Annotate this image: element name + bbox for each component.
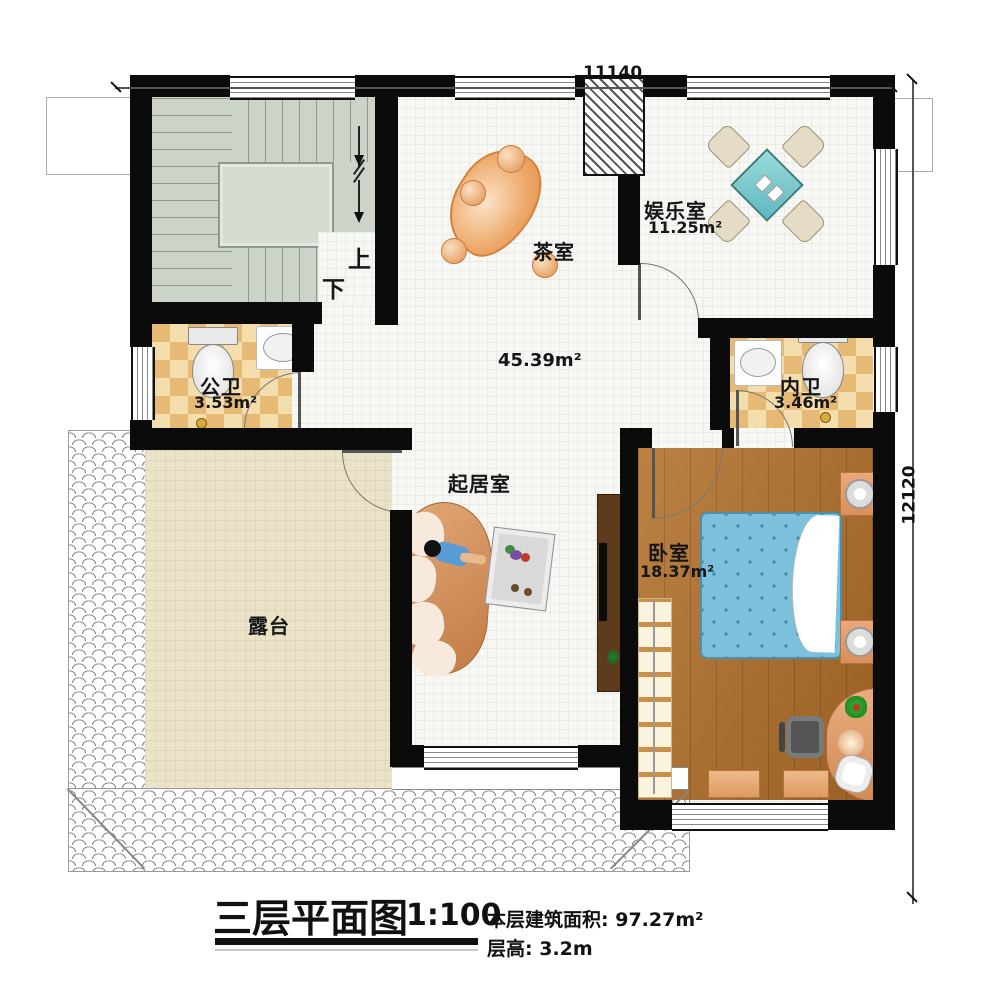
toilet-tank bbox=[188, 327, 238, 345]
stair-up-label: 上 bbox=[348, 240, 372, 274]
bedroom-bench bbox=[708, 770, 760, 798]
room-area-inner-bath: 3.46m² bbox=[774, 393, 837, 412]
floor-area-label: 本层建筑面积: bbox=[487, 909, 609, 931]
window-bottom-bedroom bbox=[672, 803, 828, 831]
stair-treads-bottom bbox=[232, 245, 318, 302]
wall-bedroom-top bbox=[794, 428, 875, 448]
hall-area: 45.39m² bbox=[498, 350, 582, 371]
teacup bbox=[524, 588, 532, 596]
clothes-rack bbox=[638, 598, 672, 798]
wall-segment bbox=[828, 800, 895, 830]
coffee-table bbox=[484, 527, 555, 612]
office-chair bbox=[786, 716, 824, 758]
room-area-entertainment: 11.25m² bbox=[648, 218, 722, 237]
wall-segment bbox=[578, 745, 622, 767]
teacup bbox=[511, 584, 519, 592]
desk-lamp-glow bbox=[838, 730, 864, 756]
title-underline-shadow bbox=[215, 949, 478, 951]
window-sill-left bbox=[46, 97, 134, 175]
wall-living-west bbox=[390, 510, 412, 745]
wall-bedroom-top bbox=[620, 428, 652, 448]
door-leaf-entertainment bbox=[638, 263, 641, 320]
room-area-bedroom: 18.37m² bbox=[640, 562, 714, 581]
dimension-right-value: 12120 bbox=[900, 465, 920, 524]
sink-basin bbox=[740, 348, 776, 377]
dimension-line-top bbox=[115, 87, 893, 89]
dimension-top-value: 11140 bbox=[583, 63, 642, 83]
wall-segment bbox=[873, 412, 895, 830]
floor-height-label: 层高: bbox=[487, 938, 533, 960]
floor-height-line: 层高: 3.2m bbox=[487, 934, 593, 961]
door-leaf-bedroom bbox=[652, 448, 655, 518]
clothes-rack-rail bbox=[653, 600, 655, 794]
room-label-terrace: 露台 bbox=[248, 610, 290, 639]
wall-bedroom-top bbox=[722, 428, 734, 448]
window-left-public-bath bbox=[131, 347, 155, 420]
floor-area-value: 97.27m² bbox=[615, 909, 703, 931]
floor-drain bbox=[820, 412, 831, 423]
bedroom-bench bbox=[783, 770, 829, 798]
wall-segment bbox=[390, 745, 424, 767]
wall-stair-tea-divider bbox=[375, 97, 398, 325]
office-chair-arm bbox=[779, 722, 785, 752]
flue-duct bbox=[583, 77, 645, 176]
stair-arrowhead bbox=[354, 212, 364, 223]
floor-area-line: 本层建筑面积: 97.27m² bbox=[487, 905, 703, 932]
flower-vase bbox=[521, 553, 530, 562]
roof-tiles-bottom bbox=[68, 788, 690, 872]
plant-small bbox=[607, 650, 619, 664]
door-leaf-inner-bath bbox=[736, 390, 739, 446]
nightstand-lamp bbox=[845, 479, 875, 509]
door-leaf-terrace bbox=[342, 450, 402, 453]
room-area-public-bath: 3.53m² bbox=[194, 393, 257, 412]
nightstand-lamp bbox=[845, 627, 875, 657]
wall-segment bbox=[620, 800, 672, 830]
plan-title: 三层平面图 bbox=[213, 888, 408, 944]
plant-flower bbox=[853, 704, 860, 711]
stair-landing bbox=[218, 162, 334, 248]
door-leaf-public-bath bbox=[298, 372, 301, 428]
window-bottom-living bbox=[424, 746, 578, 770]
tv-screen bbox=[599, 543, 607, 621]
person-head bbox=[424, 540, 441, 557]
stair-arrowhead bbox=[354, 155, 364, 166]
wall-segment bbox=[355, 75, 455, 97]
room-label-living: 起居室 bbox=[448, 468, 511, 497]
wall-inner-bath-top bbox=[698, 318, 875, 338]
wall-terrace-top bbox=[130, 428, 412, 450]
floor-plan-canvas: 柏竣建筑 柏竣建筑 柏竣建筑 上 下 bbox=[0, 0, 1000, 990]
tea-stool bbox=[441, 238, 467, 264]
wall-stair-bottom bbox=[130, 302, 322, 324]
wall-inner-bath-left bbox=[710, 338, 730, 430]
stair-down-label: 下 bbox=[322, 270, 346, 304]
stair-direction-line bbox=[358, 180, 360, 214]
stair-treads-top bbox=[232, 97, 375, 162]
tea-stool bbox=[460, 180, 486, 206]
floor-height-value: 3.2m bbox=[539, 938, 592, 960]
window-right-inner-bath bbox=[874, 347, 898, 412]
title-underline bbox=[215, 938, 478, 945]
wall-public-bath-right bbox=[292, 324, 314, 372]
wall-segment bbox=[873, 265, 895, 347]
room-label-tea: 茶室 bbox=[533, 236, 575, 265]
tea-stool bbox=[497, 145, 525, 173]
wall-bedroom-left bbox=[620, 448, 638, 800]
window-right-entertainment bbox=[874, 149, 898, 265]
